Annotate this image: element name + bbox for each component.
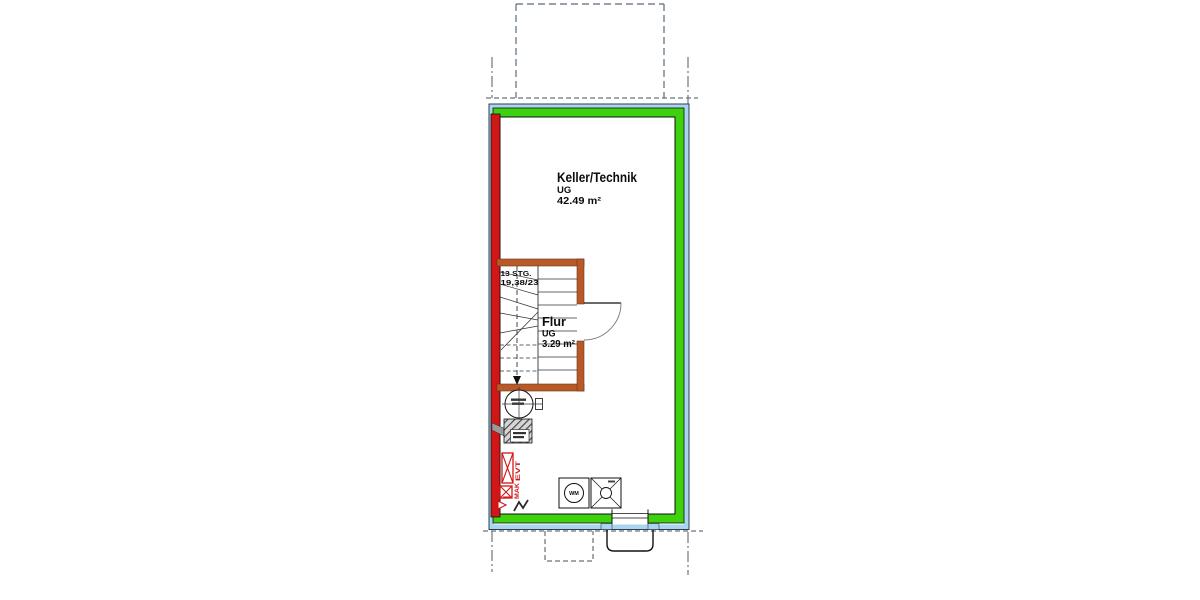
- stair-steps-label: 13 STG.: [501, 269, 532, 278]
- washing-machine-label: WM: [569, 491, 579, 497]
- tank-label-illegible: [512, 403, 524, 405]
- washing-machine-symbol: WM: [559, 478, 589, 508]
- vent-label-illegible: [513, 436, 524, 438]
- flur-room-name: Flur: [542, 315, 566, 329]
- flur-room-area: 3.29 m²: [542, 339, 576, 350]
- door-sill-left: [601, 524, 612, 530]
- supply-entry-label-illegible: [503, 497, 510, 499]
- vent-label-box: [511, 430, 530, 443]
- door-sill-right: [648, 524, 659, 530]
- stair-wall-right-lower: [577, 341, 584, 391]
- stair-wall-top: [497, 259, 584, 266]
- exterior-wall-bottom-left: [493, 514, 612, 523]
- distribution-board-label: EVT: [516, 460, 522, 481]
- keller-room-name: Keller/Technik: [557, 170, 637, 185]
- stair-wall-right-upper: [577, 259, 584, 304]
- party-wall-left: [491, 114, 500, 517]
- exterior-wall-bottom-right: [648, 514, 684, 523]
- keller-room-area: 42.49 m²: [557, 195, 602, 207]
- upper-building-outline: [516, 4, 664, 98]
- sink-drain: [601, 488, 612, 499]
- stair-wall-bottom: [497, 384, 584, 391]
- sink-label-illegible: [608, 481, 615, 483]
- lower-dashed-box: [545, 531, 593, 561]
- flur-room-level: UG: [542, 329, 556, 339]
- exterior-wall-right: [675, 108, 684, 523]
- vent-label-illegible: [513, 432, 526, 434]
- house-connection-label: MAK: [515, 482, 521, 499]
- stair-rise-run-label: 19,38/23: [501, 278, 539, 287]
- door-opening: [612, 509, 648, 525]
- exterior-wall-top: [493, 108, 684, 117]
- exterior-stair-well: [607, 530, 653, 551]
- sink-symbol: [591, 478, 621, 508]
- floorplan-canvas: 13 STG. 19,38/23 EVT MAK WM: [0, 0, 1200, 600]
- tank-label-illegible: [511, 399, 526, 401]
- floorplan-page: 13 STG. 19,38/23 EVT MAK WM: [0, 0, 1200, 600]
